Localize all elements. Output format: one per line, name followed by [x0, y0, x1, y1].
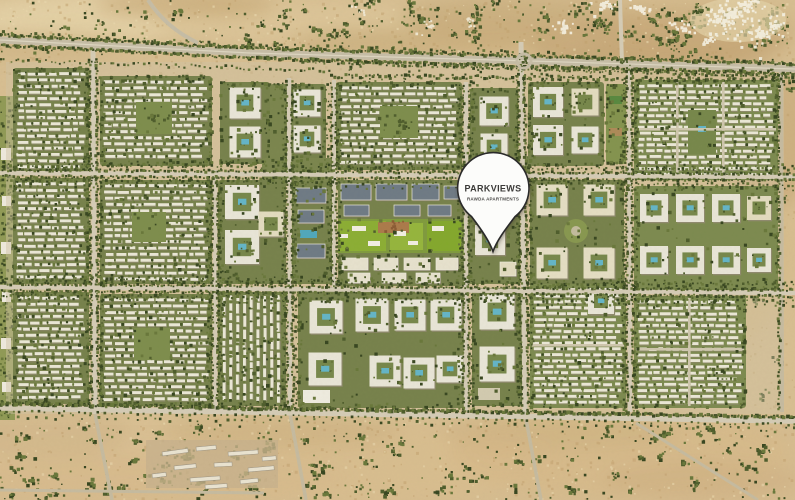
svg-text:PARKVIEWS: PARKVIEWS [465, 184, 522, 194]
svg-text:RAWDA APARTMENTS: RAWDA APARTMENTS [467, 197, 519, 202]
